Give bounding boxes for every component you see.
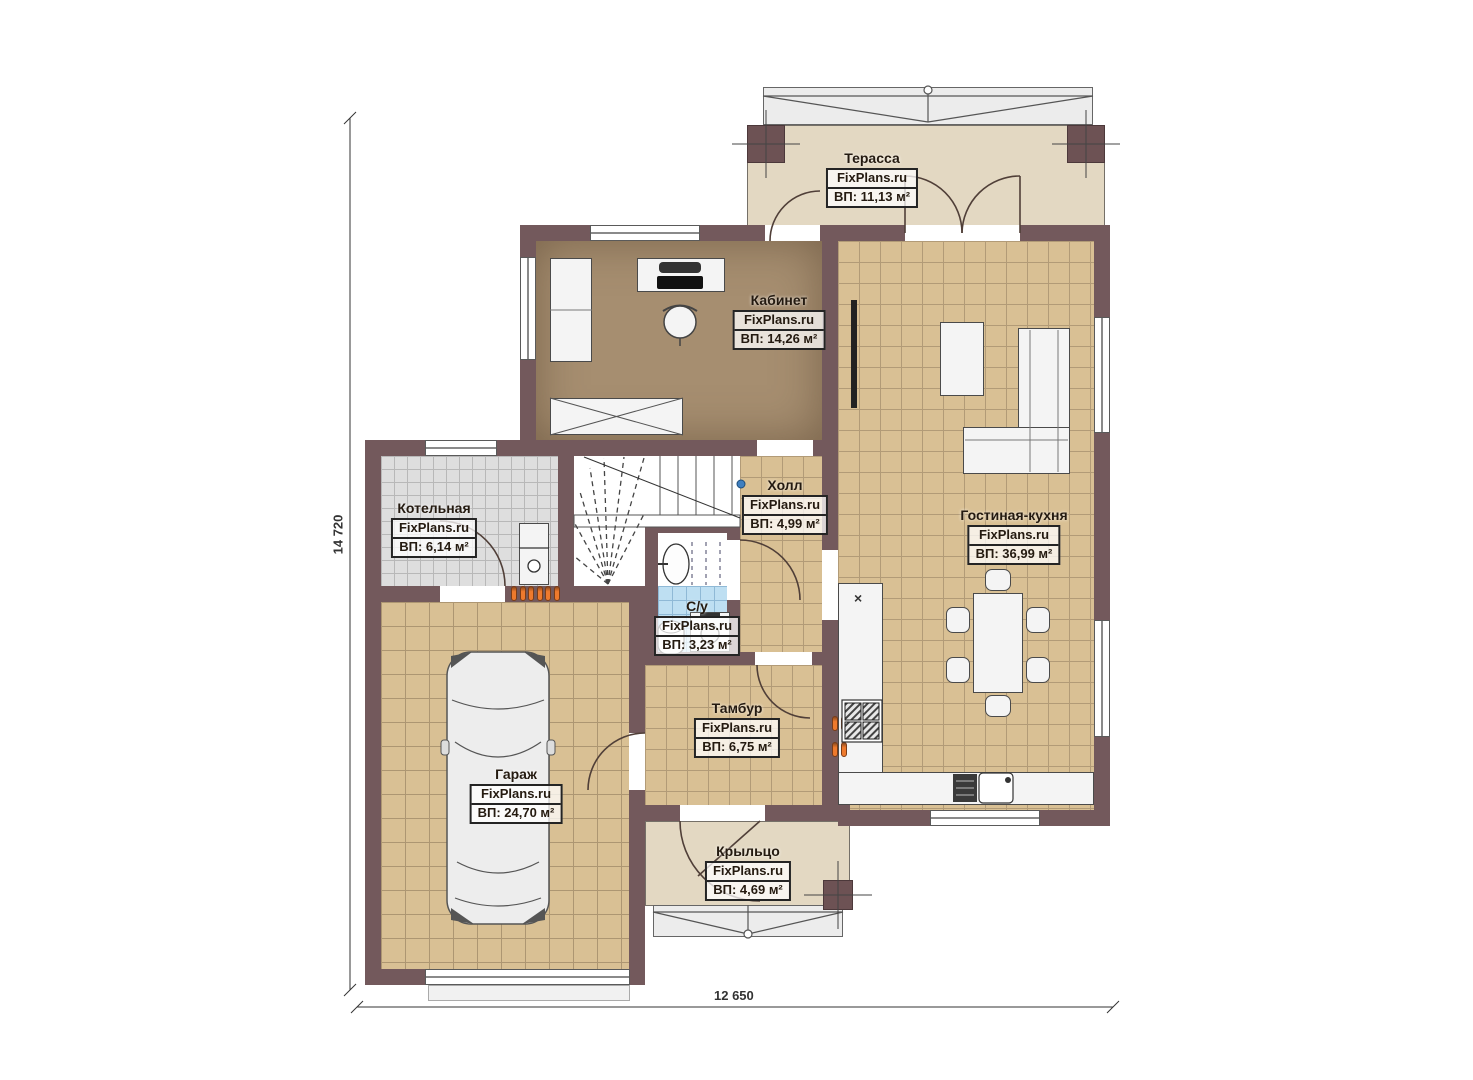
terrace-pillar-left (747, 125, 785, 163)
watermark: FixPlans.ru (472, 786, 561, 805)
room-info-box: FixPlans.ru ВП: 6,14 м² (391, 518, 477, 558)
room-name: Кабинет (733, 292, 826, 308)
bathroom-floor-upper (658, 540, 727, 588)
room-area: ВП: 11,13 м² (828, 189, 916, 206)
kitchen-counter-bottom (838, 772, 1094, 805)
room-info-box: FixPlans.ru ВП: 36,99 м² (968, 525, 1061, 565)
room-name: Гостиная-кухня (960, 507, 1067, 523)
office-wardrobe (550, 398, 683, 435)
opening-vestibule-garage (629, 733, 645, 790)
room-area: ВП: 6,14 м² (393, 539, 475, 556)
room-name: Холл (742, 477, 828, 493)
opening-bathroom-door (727, 540, 740, 600)
room-name: С/у (654, 598, 740, 614)
dining-chair-top (985, 569, 1011, 591)
opening-french-door (905, 225, 1020, 241)
opening-hall-living (822, 550, 838, 620)
room-area: ВП: 24,70 м² (472, 805, 561, 822)
hob-vent-mark: × (854, 590, 862, 606)
room-label-boiler: Котельная FixPlans.ru ВП: 6,14 м² (391, 500, 477, 558)
room-area: ВП: 4,69 м² (707, 882, 789, 899)
room-label-porch: Крыльцо FixPlans.ru ВП: 4,69 м² (705, 843, 791, 901)
living-sofa-horizontal (963, 427, 1070, 474)
garage-door-opening (425, 969, 630, 985)
wall-boiler-garage (365, 586, 645, 602)
room-info-box: FixPlans.ru ВП: 24,70 м² (470, 784, 563, 824)
terrace-canopy (763, 87, 1093, 125)
room-area: ВП: 14,26 м² (735, 331, 824, 348)
room-label-living-kitchen: Гостиная-кухня FixPlans.ru ВП: 36,99 м² (960, 507, 1067, 565)
opening-boiler-garage (440, 586, 505, 602)
porch-canopy (653, 905, 843, 937)
room-name: Котельная (391, 500, 477, 516)
watermark: FixPlans.ru (735, 312, 824, 331)
dining-table (973, 593, 1023, 693)
room-name: Крыльцо (705, 843, 791, 859)
radiator-icon (528, 586, 543, 601)
wall-bathroom-top (645, 520, 740, 533)
opening-entrance-door (680, 805, 765, 821)
room-label-hall: Холл FixPlans.ru ВП: 4,99 м² (742, 477, 828, 535)
tv-panel (851, 300, 857, 408)
terrace-floor (747, 125, 1105, 232)
room-info-box: FixPlans.ru ВП: 11,13 м² (826, 168, 918, 208)
room-label-terrace: Терасса FixPlans.ru ВП: 11,13 м² (826, 150, 918, 208)
radiator-icon (545, 586, 560, 601)
room-info-box: FixPlans.ru ВП: 4,69 м² (705, 861, 791, 901)
opening-office-terrace-door (765, 225, 820, 241)
window-boiler-top (425, 440, 497, 456)
dining-chair-right-1 (1026, 607, 1050, 633)
opening-vestibule-hall (755, 652, 812, 665)
boiler-unit (519, 523, 549, 585)
room-label-bathroom: С/у FixPlans.ru ВП: 3,23 м² (654, 598, 740, 656)
room-area: ВП: 36,99 м² (970, 546, 1059, 563)
wall-garage-right (629, 602, 645, 985)
window-living-right-2 (1094, 620, 1110, 737)
garage-apron (428, 985, 630, 1001)
room-info-box: FixPlans.ru ВП: 4,99 м² (742, 495, 828, 535)
office-sofa (550, 258, 592, 362)
room-name: Гараж (470, 766, 563, 782)
opening-hall-office (757, 440, 813, 456)
room-info-box: FixPlans.ru ВП: 14,26 м² (733, 310, 826, 350)
room-area: ВП: 6,75 м² (696, 739, 778, 756)
porch-pillar (823, 880, 853, 910)
watermark: FixPlans.ru (707, 863, 789, 882)
watermark: FixPlans.ru (393, 520, 475, 539)
watermark: FixPlans.ru (970, 527, 1059, 546)
watermark: FixPlans.ru (656, 618, 738, 637)
watermark: FixPlans.ru (696, 720, 778, 739)
room-info-box: FixPlans.ru ВП: 6,75 м² (694, 718, 780, 758)
room-label-vestibule: Тамбур FixPlans.ru ВП: 6,75 м² (694, 700, 780, 758)
dining-chair-left-2 (946, 657, 970, 683)
room-name: Тамбур (694, 700, 780, 716)
terrace-pillar-right (1067, 125, 1105, 163)
wall-stairs-boiler (558, 456, 574, 586)
floor-plan-canvas: × (0, 0, 1473, 1080)
window-office-left (520, 257, 536, 360)
room-info-box: FixPlans.ru ВП: 3,23 м² (654, 616, 740, 656)
watermark: FixPlans.ru (828, 170, 916, 189)
radiator-icon (832, 716, 847, 731)
room-name: Терасса (826, 150, 918, 166)
dining-chair-bottom (985, 695, 1011, 717)
room-label-office: Кабинет FixPlans.ru ВП: 14,26 м² (733, 292, 826, 350)
window-living-right-1 (1094, 317, 1110, 433)
room-area: ВП: 3,23 м² (656, 637, 738, 654)
office-desk (637, 258, 725, 292)
coffee-table (940, 322, 984, 396)
radiator-icon (832, 742, 847, 757)
dining-chair-right-2 (1026, 657, 1050, 683)
dimension-height-label: 14 720 (330, 515, 345, 555)
room-label-garage: Гараж FixPlans.ru ВП: 24,70 м² (470, 766, 563, 824)
room-area: ВП: 4,99 м² (744, 516, 826, 533)
window-living-bottom (930, 810, 1040, 826)
wall-left-outer (365, 440, 381, 985)
dimension-width-label: 12 650 (714, 988, 754, 1003)
radiator-icon (511, 586, 526, 601)
dining-chair-left-1 (946, 607, 970, 633)
window-office-top (590, 225, 700, 241)
watermark: FixPlans.ru (744, 497, 826, 516)
